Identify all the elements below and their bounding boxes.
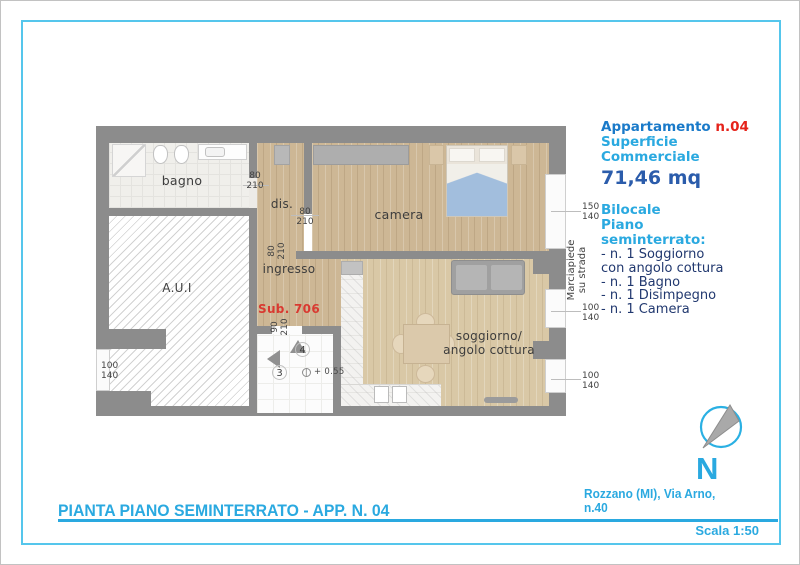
floor-aui <box>109 216 249 406</box>
address-line1: Rozzano (MI), Via Arno, <box>584 487 715 501</box>
bidet-icon <box>174 145 189 164</box>
wall-top <box>96 126 566 143</box>
wall-bottom-left <box>96 406 257 416</box>
pillow-icon <box>479 148 505 162</box>
dim-width: 100 <box>101 361 125 371</box>
dimension-bagno-door: 80 210 <box>243 171 267 191</box>
wall-bottom-right <box>333 406 566 416</box>
page: 4 3 + 0.55 80 210 80 210 80 210 90 210 1… <box>0 0 800 565</box>
chair-icon <box>416 365 435 383</box>
dim-height: 210 <box>277 239 287 263</box>
feature-item: - n. 1 Camera <box>601 303 779 317</box>
room-label-aui: A.U.I <box>152 281 202 295</box>
layout-label-line1: Bilocale <box>601 203 779 218</box>
compass: N <box>679 391 771 489</box>
stair-number-upper: 4 <box>295 342 310 357</box>
stair-number-lower: 3 <box>272 365 287 380</box>
kitchen-sink-icon <box>374 386 389 403</box>
soggiorno-window-lower <box>545 359 566 393</box>
dim-width: 80 <box>267 239 277 263</box>
title-rule <box>58 519 778 522</box>
bed-icon <box>446 145 508 217</box>
stair-number-upper-label: 4 <box>299 345 305 356</box>
storage-cabinet-icon <box>274 145 290 165</box>
page-title: PIANTA PIANO SEMINTERRATO - APP. N. 04 <box>58 501 389 521</box>
dim-height: 140 <box>101 371 125 381</box>
rug-icon <box>484 397 518 403</box>
level-marker-icon <box>302 368 311 377</box>
sidewalk-label-line2: su strada <box>577 224 588 316</box>
soggiorno-window-upper <box>545 289 566 328</box>
dim-height: 210 <box>293 217 317 227</box>
wall-camera-soggiorno <box>296 251 554 259</box>
floor-plan: 4 3 + 0.55 80 210 80 210 80 210 90 210 1… <box>96 119 601 419</box>
dimension-soggiorno-window-lower: 100 140 <box>582 371 606 391</box>
sink-icon <box>205 147 225 157</box>
wall-stairs-bottom-line <box>257 413 333 416</box>
dim-leader <box>551 379 581 380</box>
surface-label-line2: Commerciale <box>601 150 779 165</box>
toilet-icon <box>153 145 168 164</box>
dim-width: 90 <box>270 315 280 339</box>
pillow-icon <box>449 148 475 162</box>
kitchen-sink-icon <box>392 386 407 403</box>
feature-item: - n. 1 Bagno <box>601 276 779 290</box>
apartment-title: Appartamento n.04 <box>601 120 779 135</box>
apartment-label: Appartamento <box>601 119 711 135</box>
wall-left-notch <box>96 329 166 349</box>
room-label-dis: dis. <box>266 197 298 211</box>
room-label-bagno: bagno <box>152 174 212 188</box>
wall-left-aui <box>96 216 109 329</box>
kitchen-counter <box>341 384 441 407</box>
room-label-soggiorno-line2: angolo cottura <box>423 343 555 357</box>
sidewalk-label: Marciapiede su strada <box>566 224 590 316</box>
sofa-cushion <box>491 265 522 290</box>
room-label-soggiorno-line1: soggiorno/ <box>423 329 555 343</box>
nightstand-left-icon <box>429 145 444 165</box>
wall-protrusion-top <box>533 259 549 274</box>
nightstand-right-icon <box>511 145 527 165</box>
kitchen-appliance-icon <box>341 261 363 275</box>
dimension-ingresso-door: 80 210 <box>267 239 287 263</box>
sidewalk-label-line1: Marciapiede <box>566 224 577 316</box>
room-label-camera: camera <box>368 208 430 222</box>
room-label-ingresso: ingresso <box>257 262 321 276</box>
scale-label: Scala 1:50 <box>599 523 759 538</box>
shower-icon <box>112 144 146 177</box>
stair-number-lower-label: 3 <box>276 368 282 379</box>
wall-left-bagno <box>96 126 109 216</box>
dimension-stairs-door: 90 210 <box>270 315 290 339</box>
surface-label-line1: Superficie <box>601 135 779 150</box>
sub-unit-label: Sub. 706 <box>256 302 322 316</box>
address-line2: n.40 <box>584 501 608 515</box>
blanket-icon <box>447 164 507 216</box>
wall-dis-camera <box>304 143 312 214</box>
room-label-soggiorno: soggiorno/ angolo cottura <box>423 329 555 357</box>
level-label: + 0.55 <box>314 366 345 378</box>
layout-label-line3: seminterrato: <box>601 233 779 248</box>
dim-width: 100 <box>582 371 606 381</box>
sofa-cushion <box>456 265 487 290</box>
dim-height: 210 <box>280 315 290 339</box>
dim-leader <box>551 211 581 212</box>
layout-label-line2: Piano <box>601 218 779 233</box>
wall-bagno-bottom <box>96 208 257 216</box>
dim-height: 140 <box>582 381 606 391</box>
north-label: N <box>696 451 718 486</box>
feature-item: con angolo cottura <box>601 262 779 276</box>
sofa-icon <box>451 260 525 295</box>
area-value: 71,46 mq <box>601 167 779 189</box>
feature-item: - n. 1 Disimpegno <box>601 289 779 303</box>
dim-width: 80 <box>243 171 267 181</box>
apartment-number: n.04 <box>715 119 749 135</box>
dim-height: 210 <box>243 181 267 191</box>
wardrobe-icon <box>313 145 409 165</box>
feature-item: - n. 1 Soggiorno <box>601 248 779 262</box>
dimension-aui-window: 100 140 <box>101 361 125 381</box>
info-panel: Appartamento n.04 Superficie Commerciale… <box>601 120 779 317</box>
